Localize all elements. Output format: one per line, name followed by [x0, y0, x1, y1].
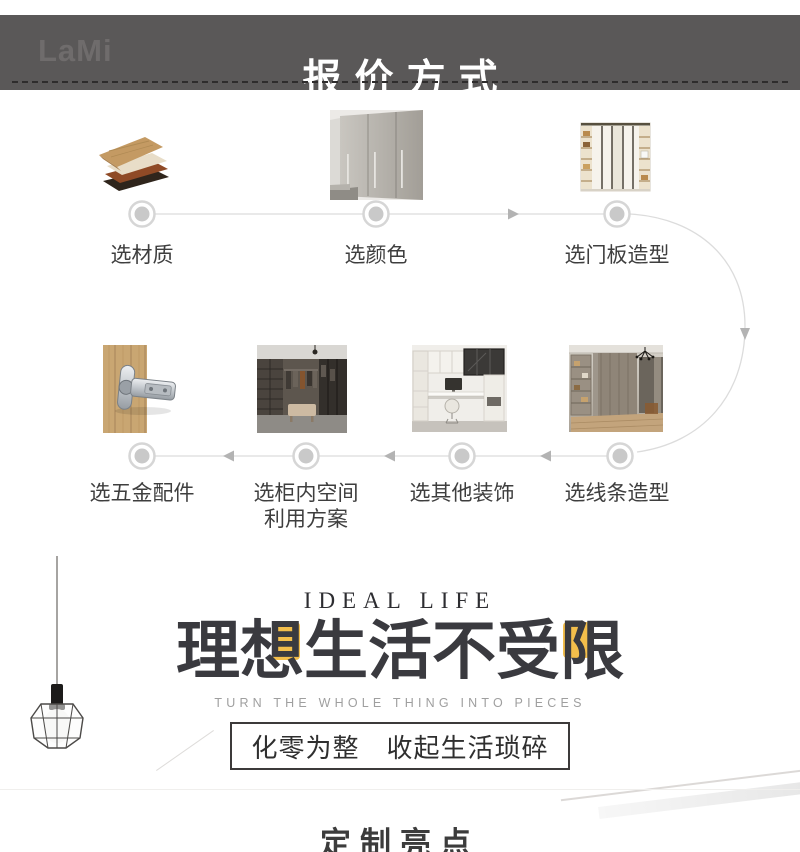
step-label-color: 选颜色 — [266, 243, 486, 269]
walk-in-closet-photo — [257, 345, 347, 433]
step-label-molding: 选线条造型 — [507, 481, 727, 507]
step-label-doorpanel: 选门板造型 — [507, 243, 727, 269]
hero-eyebrow: IDEAL LIFE — [0, 588, 800, 614]
arrow-left-icon — [540, 451, 551, 462]
hero-title-char: 生 — [304, 616, 368, 686]
study-desk-photo — [412, 345, 507, 432]
promo-page: LaMi 报价方式 — [0, 0, 800, 852]
hero-title-char: 不 — [432, 616, 496, 686]
door-panel-wardrobe-photo — [576, 121, 655, 196]
arrow-left-icon — [223, 451, 234, 462]
hero-title-char-highlighted: 限 — [560, 616, 624, 686]
section-divider — [0, 789, 800, 790]
flow-node-dots — [130, 202, 633, 469]
hero-title-char-highlighted: 想 — [240, 616, 304, 686]
molding-wardrobe-photo — [569, 345, 663, 432]
decor-streak — [156, 730, 214, 771]
step-label-material: 选材质 — [32, 243, 252, 269]
header-bar: LaMi 报价方式 — [0, 15, 800, 90]
arrow-left-icon — [384, 451, 395, 462]
hero-title-char: 受 — [496, 616, 560, 686]
hero-subtitle: TURN THE WHOLE THING INTO PIECES — [0, 696, 800, 710]
dashed-divider — [12, 81, 788, 83]
gray-wardrobe-photo — [330, 110, 423, 200]
section-title-highlights: 定制亮点 — [0, 818, 800, 852]
decor-streak — [598, 779, 800, 819]
hero-title: 理 想 生 活 不 受 限 — [0, 616, 800, 688]
hero-title-char: 活 — [368, 616, 432, 686]
hero-title-char: 理 — [176, 616, 240, 686]
arrow-down-icon — [740, 328, 750, 340]
material-samples-photo — [95, 133, 175, 197]
page-title: 报价方式 — [0, 48, 800, 104]
hinge-hardware-photo — [97, 345, 184, 433]
arrow-right-icon — [508, 209, 519, 220]
slogan-box: 化零为整 收起生活琐碎 — [230, 722, 570, 770]
